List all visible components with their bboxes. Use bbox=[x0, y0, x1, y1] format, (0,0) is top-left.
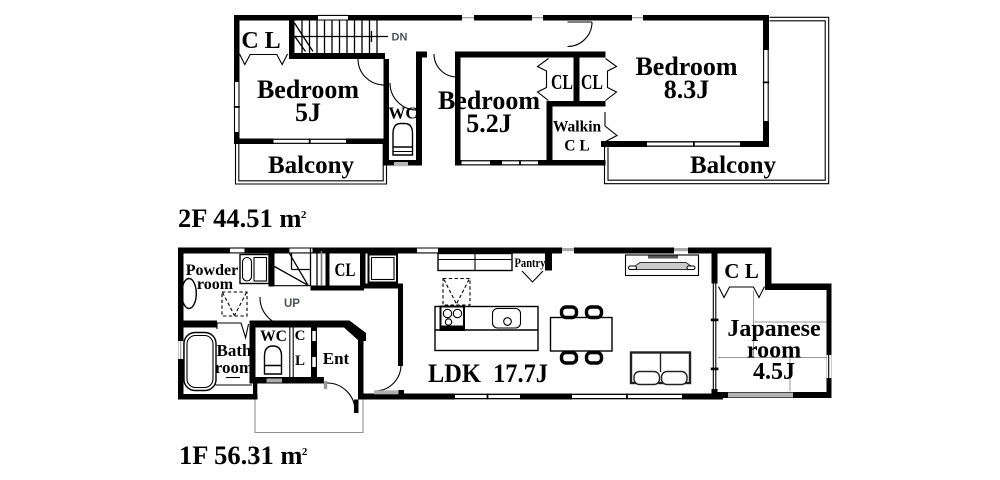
svg-text:C L: C L bbox=[241, 28, 280, 54]
svg-text:WC: WC bbox=[388, 104, 417, 123]
svg-text:CL: CL bbox=[335, 260, 356, 281]
svg-text:4.5J: 4.5J bbox=[753, 359, 795, 385]
svg-text:8.3J: 8.3J bbox=[664, 75, 710, 104]
svg-text:5J: 5J bbox=[295, 98, 321, 127]
svg-text:WC: WC bbox=[260, 328, 287, 345]
svg-text:UP: UP bbox=[284, 298, 300, 310]
svg-text:L: L bbox=[295, 353, 305, 369]
svg-text:Ent: Ent bbox=[323, 349, 350, 368]
svg-text:DN: DN bbox=[392, 32, 408, 44]
svg-text:2F 44.51 m2: 2F 44.51 m2 bbox=[178, 203, 307, 233]
svg-text:room: room bbox=[215, 358, 253, 377]
svg-text:1F 56.31 m2: 1F 56.31 m2 bbox=[179, 440, 308, 470]
svg-text:room: room bbox=[197, 276, 234, 293]
svg-text:Walkin: Walkin bbox=[553, 119, 602, 136]
svg-text:5.2J: 5.2J bbox=[466, 109, 512, 138]
svg-text:C L: C L bbox=[564, 138, 589, 155]
svg-text:Balcony: Balcony bbox=[268, 152, 355, 179]
svg-text:CL: CL bbox=[551, 70, 573, 94]
svg-text:C L: C L bbox=[724, 259, 758, 283]
svg-text:Pantry: Pantry bbox=[515, 255, 546, 270]
svg-text:LDK 17.7J: LDK 17.7J bbox=[428, 359, 548, 388]
svg-text:Balcony: Balcony bbox=[690, 152, 777, 179]
svg-text:CL: CL bbox=[581, 70, 603, 94]
svg-text:C: C bbox=[295, 328, 306, 344]
